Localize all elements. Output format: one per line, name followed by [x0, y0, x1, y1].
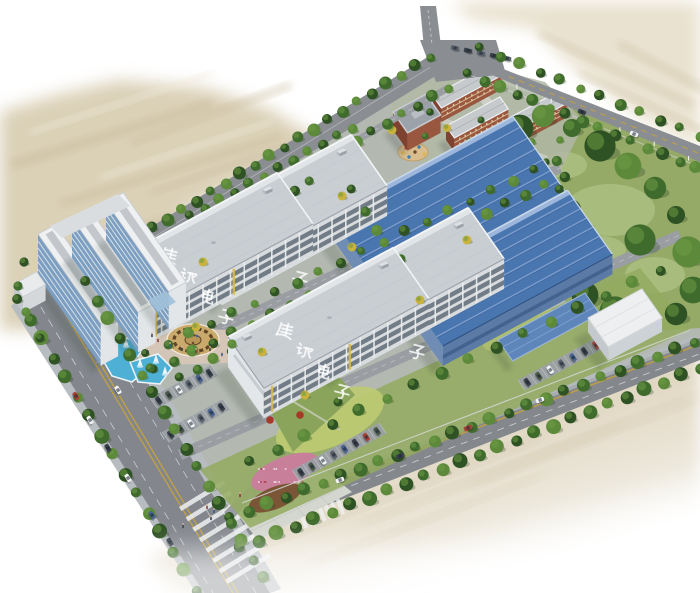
person: [206, 506, 208, 509]
person: [209, 348, 211, 351]
person: [210, 517, 212, 520]
roof-label: 建诚电子: [162, 229, 226, 248]
umbrella: [413, 150, 416, 153]
street-light: [551, 99, 552, 104]
person: [157, 339, 159, 342]
roof-label: 建诚电子: [278, 304, 342, 323]
wall-accent: [233, 269, 235, 295]
wall-accent: [349, 344, 351, 370]
person: [181, 348, 183, 351]
person: [146, 350, 148, 353]
person: [221, 353, 223, 356]
wall-accent: [271, 386, 273, 412]
person: [151, 334, 153, 337]
person: [213, 510, 215, 513]
rendering-stage: 建诚电子建诚电子建诚电子建诚电子: [0, 0, 700, 593]
umbrella: [407, 155, 410, 158]
person: [239, 494, 241, 497]
person: [195, 350, 197, 353]
person: [182, 525, 184, 528]
street-light: [688, 156, 689, 161]
industrial-park-aerial-rendering: 建诚电子建诚电子建诚电子建诚电子: [0, 0, 700, 593]
umbrella: [417, 145, 420, 148]
red-maple: [296, 411, 304, 419]
person: [169, 344, 171, 347]
street-light: [516, 84, 517, 89]
red-maple: [266, 416, 274, 424]
umbrella: [422, 152, 425, 155]
street-light: [654, 142, 655, 147]
